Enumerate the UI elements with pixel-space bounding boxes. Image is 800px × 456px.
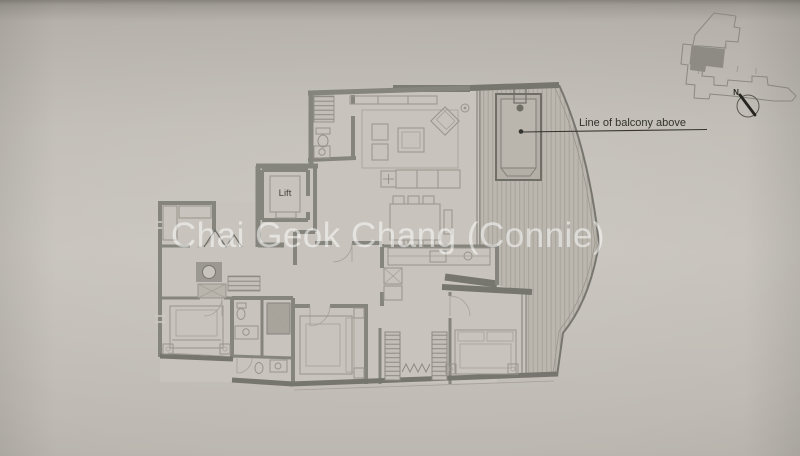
balcony-annotation-label: Line of balcony above [579, 117, 686, 129]
washer [203, 266, 216, 279]
wardrobe-bank-left [385, 332, 400, 380]
utility-counter [228, 276, 260, 291]
north-arrow: N [733, 88, 759, 117]
floor-plan-drawing: Lift [0, 0, 800, 456]
compass-north-label: N [733, 88, 739, 97]
key-plan-unit-highlight [690, 46, 725, 72]
lift-label: Lift [279, 188, 292, 199]
watermark-text: Chai Geok Chang (Connie) [171, 216, 605, 255]
ac-ledge [314, 96, 334, 122]
floor-plan-photo: Lift [0, 0, 800, 456]
wardrobe-bank-right [432, 332, 447, 380]
